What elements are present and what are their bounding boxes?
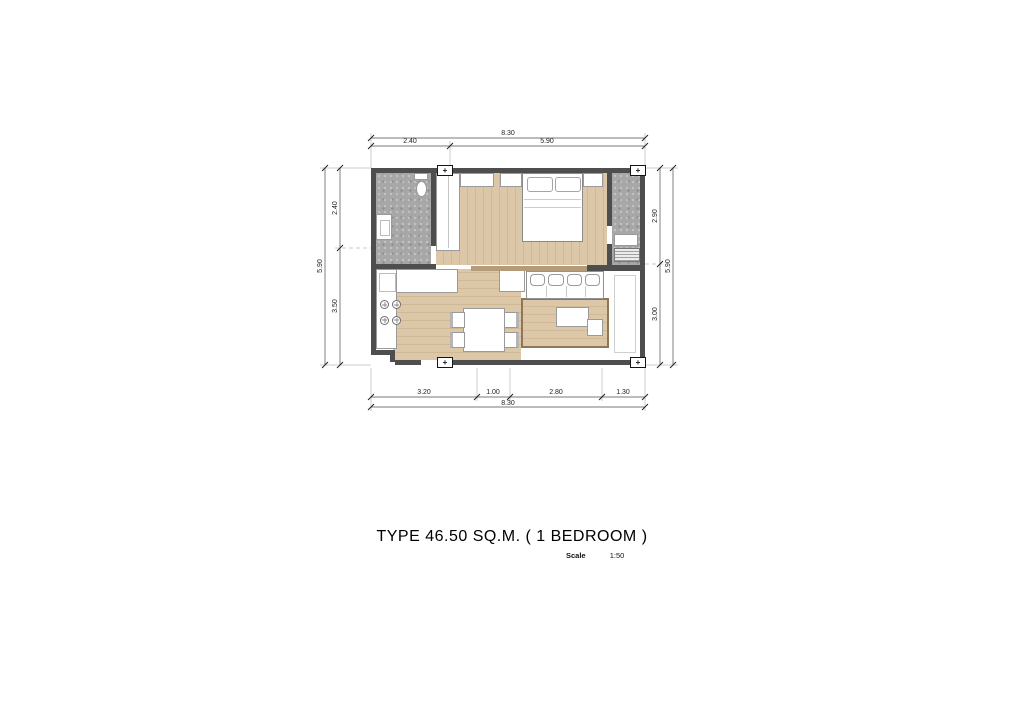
- wardrobe: [436, 173, 460, 251]
- ac-unit-top: [614, 234, 638, 246]
- wall-bottom: [439, 360, 645, 365]
- column-marker: +: [437, 165, 453, 176]
- bathroom-right-wall: [431, 168, 436, 246]
- dining-chair: [450, 312, 465, 328]
- dining-chair: [504, 312, 519, 328]
- column-marker: +: [630, 165, 646, 176]
- balcony-divider-upper: [607, 168, 612, 226]
- sofa-cushion: [530, 274, 545, 286]
- dim-top-total: 8.30: [501, 130, 515, 137]
- dresser: [460, 173, 494, 187]
- ac-condenser: [614, 248, 640, 262]
- tv-stand: [499, 270, 525, 292]
- dim-top-seg-1: 2.40: [403, 138, 417, 145]
- dim-right-total: 5.90: [665, 259, 672, 273]
- sofa-cushion: [585, 274, 600, 286]
- floor-plan-sheet: + + + + 8.30 2.40 5.90: [0, 0, 1024, 724]
- kitchen-sink: [379, 273, 396, 292]
- right-dimensions: [645, 165, 678, 368]
- low-console-partition: [471, 266, 587, 271]
- living-bedroom-partition: [587, 265, 645, 271]
- dim-bottom-seg-3: 2.80: [549, 389, 563, 396]
- wall-bottom-left: [395, 360, 421, 365]
- dim-bottom-seg-1: 3.20: [417, 389, 431, 396]
- stove-burner: [380, 300, 389, 309]
- scale-note: Scale 1:50: [566, 551, 624, 560]
- left-dimensions: [320, 165, 371, 368]
- dim-bottom-seg-2: 1.00: [486, 389, 500, 396]
- column-marker: +: [437, 357, 453, 368]
- dim-left-total: 5.90: [317, 259, 324, 273]
- bathroom-sink: [376, 214, 392, 240]
- sofa-cushion: [567, 274, 582, 286]
- scale-value: 1:50: [610, 551, 625, 560]
- dim-bottom-seg-4: 1.30: [616, 389, 630, 396]
- column-marker: +: [630, 357, 646, 368]
- toilet-bowl: [416, 181, 427, 197]
- toilet-tank: [414, 173, 428, 180]
- plan-title: TYPE 46.50 SQ.M. ( 1 BEDROOM ): [262, 528, 762, 546]
- pillow-left: [527, 177, 553, 192]
- stove-burner: [392, 300, 401, 309]
- dining-table: [463, 308, 505, 352]
- dining-chair: [504, 332, 519, 348]
- stove-burner: [380, 316, 389, 325]
- media-cabinet: [614, 275, 636, 353]
- floor-plan: + + + +: [371, 168, 645, 365]
- dining-chair: [450, 332, 465, 348]
- balcony-divider-lower: [607, 244, 612, 265]
- sofa: [526, 271, 604, 299]
- entry-recess-return: [390, 350, 395, 362]
- wall-left: [371, 168, 376, 350]
- stove-burner: [392, 316, 401, 325]
- dim-left-seg-2: 3.50: [332, 299, 339, 313]
- dim-right-seg-2: 3.00: [652, 307, 659, 321]
- nightstand-left: [500, 173, 522, 187]
- dim-bottom-total: 8.30: [501, 400, 515, 407]
- side-table: [587, 319, 603, 336]
- sofa-cushion: [548, 274, 563, 286]
- nightstand-right: [583, 173, 603, 187]
- dim-top-seg-2: 5.90: [540, 138, 554, 145]
- dim-left-seg-1: 2.40: [332, 201, 339, 215]
- coffee-table: [556, 307, 589, 327]
- stove: [378, 298, 399, 330]
- wall-top: [371, 168, 645, 173]
- scale-label: Scale: [566, 551, 586, 560]
- pillow-right: [555, 177, 581, 192]
- dim-right-seg-1: 2.90: [652, 209, 659, 223]
- bathroom-bottom-wall: [371, 264, 436, 269]
